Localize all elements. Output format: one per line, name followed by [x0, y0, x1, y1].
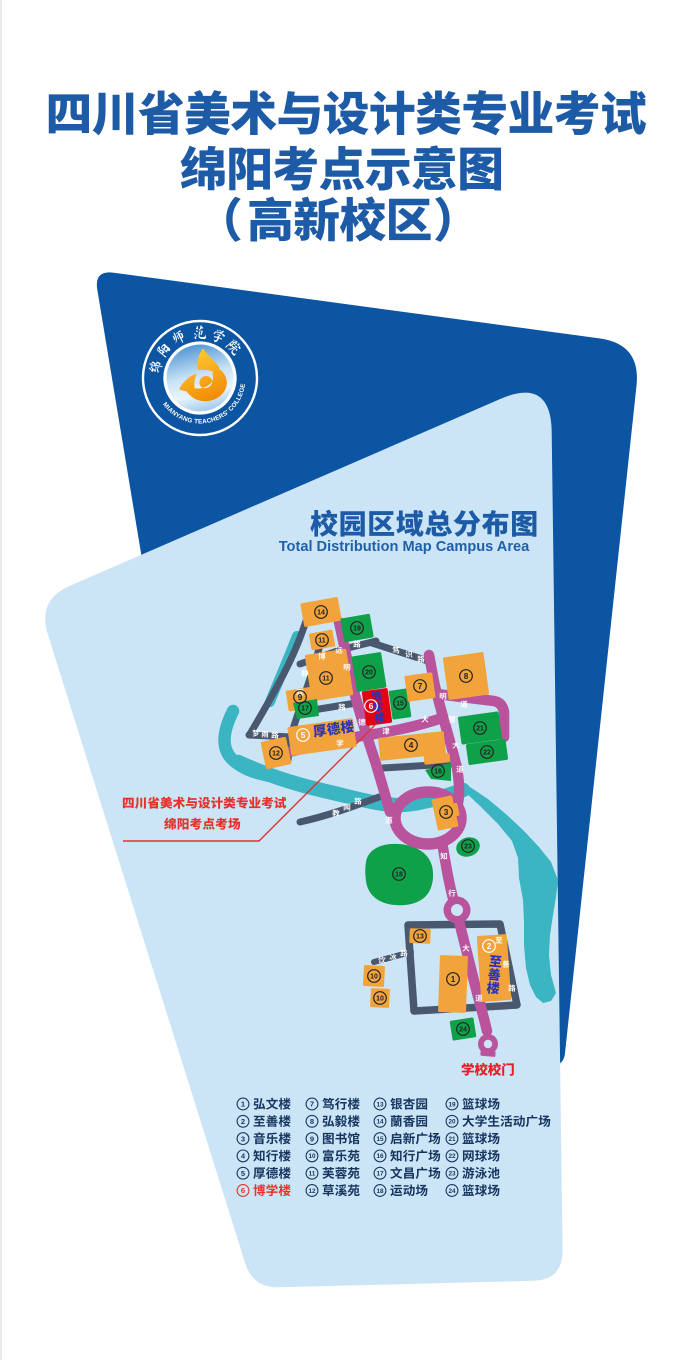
svg-text:2: 2	[241, 1117, 245, 1126]
svg-text:3: 3	[444, 808, 449, 817]
svg-text:13: 13	[416, 934, 424, 941]
svg-text:18: 18	[395, 872, 403, 879]
svg-text:8: 8	[464, 672, 469, 681]
svg-text:9: 9	[298, 693, 303, 702]
svg-text:23: 23	[464, 844, 472, 851]
svg-text:12: 12	[272, 751, 280, 758]
svg-text:Total Distribution Map Campus: Total Distribution Map Campus Area	[279, 539, 530, 555]
svg-text:15: 15	[376, 1136, 384, 1143]
svg-text:10: 10	[308, 1153, 316, 1160]
svg-text:10: 10	[370, 974, 378, 981]
svg-text:17: 17	[376, 1171, 384, 1178]
svg-text:11: 11	[318, 638, 326, 645]
svg-text:11: 11	[309, 1171, 316, 1178]
svg-text:11: 11	[322, 676, 330, 683]
svg-text:16: 16	[434, 769, 442, 776]
svg-text:2: 2	[487, 942, 492, 951]
svg-text:6: 6	[241, 1186, 245, 1195]
svg-text:13: 13	[376, 1101, 384, 1108]
svg-text:7: 7	[310, 1100, 314, 1109]
svg-text:8: 8	[310, 1117, 314, 1126]
svg-text:4: 4	[409, 741, 414, 750]
svg-text:3: 3	[241, 1134, 245, 1143]
svg-text:19: 19	[448, 1101, 456, 1108]
svg-text:19: 19	[353, 626, 361, 633]
svg-text:17: 17	[301, 706, 309, 713]
svg-text:24: 24	[459, 1027, 467, 1034]
svg-text:7: 7	[418, 682, 423, 691]
svg-text:22: 22	[483, 750, 491, 757]
svg-text:9: 9	[310, 1134, 314, 1143]
svg-text:1: 1	[451, 975, 456, 984]
svg-text:15: 15	[396, 701, 404, 708]
svg-text:21: 21	[448, 1136, 456, 1143]
svg-text:16: 16	[376, 1153, 384, 1160]
svg-text:23: 23	[448, 1171, 456, 1178]
svg-text:14: 14	[376, 1119, 384, 1126]
svg-text:20: 20	[448, 1119, 456, 1126]
svg-text:18: 18	[376, 1188, 384, 1195]
svg-text:20: 20	[365, 670, 373, 677]
svg-text:14: 14	[317, 610, 325, 617]
svg-text:12: 12	[308, 1188, 316, 1195]
svg-text:21: 21	[476, 726, 484, 733]
svg-text:5: 5	[301, 731, 306, 740]
svg-text:22: 22	[448, 1153, 456, 1160]
svg-text:10: 10	[376, 996, 384, 1003]
svg-text:24: 24	[448, 1188, 456, 1195]
svg-text:6: 6	[369, 702, 374, 711]
